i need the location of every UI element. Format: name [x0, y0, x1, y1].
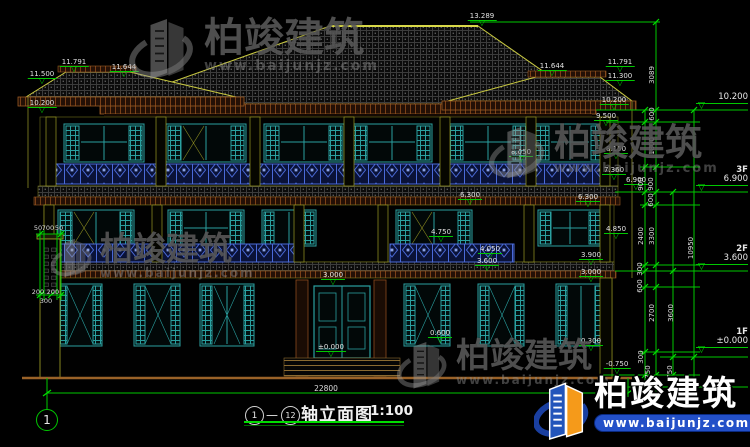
entrance-door	[284, 280, 400, 376]
dimension-value: 200	[32, 288, 44, 296]
dimension-value: 3600	[667, 304, 675, 322]
dimension-value: 600	[648, 107, 656, 120]
elevation-marker: 4.850	[604, 225, 628, 239]
elevation-marker: 10.200	[600, 96, 629, 110]
elevation-marker: 11.300	[606, 72, 635, 86]
brand-url-banner: www.baijunjz.com	[594, 414, 750, 432]
axis-bubble-1: 1	[36, 409, 58, 431]
dimension-value: 900	[647, 177, 655, 190]
elevation-marker: 3.900	[579, 251, 603, 265]
elevation-marker: 3.000	[579, 268, 603, 282]
elevation-marker: 4.750	[429, 228, 453, 242]
brand-logo: 柏竣建筑 www.baijunjz.com	[534, 377, 750, 443]
title-dash: —	[266, 408, 278, 422]
elevation-marker: 13.289	[468, 12, 497, 26]
elevation-marker: 11.500	[28, 70, 57, 84]
cad-elevation-screenshot: 13.289 11.791 11.644 11.500 10.200 11.64…	[0, 0, 750, 447]
elevation-marker: 6.300	[458, 191, 482, 205]
elevation-marker: 3.000	[321, 271, 345, 285]
elevation-marker: -0.750	[604, 360, 631, 374]
dimension-value: 900	[637, 177, 645, 190]
level-marker-3f: 3F6.900	[696, 166, 748, 186]
dimension-value: 300	[637, 350, 645, 363]
title-underline	[244, 421, 404, 423]
elevation-marker: 11.644	[538, 62, 567, 76]
elevation-marker: 7.360	[602, 166, 626, 180]
brand-name: 柏竣建筑	[594, 377, 750, 411]
dimension-value: 2700	[648, 304, 656, 322]
brand-logo-icon	[534, 377, 592, 443]
elevation-marker: 3.600	[475, 257, 499, 271]
dimension-value: 1800	[648, 137, 656, 155]
dimension-value: 300	[636, 262, 644, 275]
total-width-dimension: 22800	[314, 384, 338, 393]
railing-2f-left	[48, 244, 300, 262]
dimension-value: 2400	[637, 227, 645, 245]
dimension-value: 3089	[648, 66, 656, 84]
title-underline-2	[244, 425, 404, 426]
elevation-marker: ±0.000	[316, 343, 346, 357]
elevation-marker: 9.500	[594, 112, 618, 126]
dimension-value: 200	[47, 288, 59, 296]
dimension-value: 700	[42, 224, 54, 232]
elevation-marker: 11.791	[60, 58, 89, 72]
elevation-marker: 8.050	[509, 148, 533, 162]
elevation-marker: 0.600	[428, 329, 452, 343]
dimension-value: 50	[55, 224, 63, 232]
level-marker-parapet: 10.200	[696, 93, 748, 104]
drawing-scale: 1:100	[370, 403, 413, 419]
railing-3f	[50, 164, 608, 184]
elevation-marker: 11.644	[110, 63, 139, 77]
elevation-marker: 11.791	[606, 58, 635, 72]
level-marker-2f: 2F3.600	[696, 245, 748, 265]
dimension-value: 3300	[648, 227, 656, 245]
elevation-marker: 8.150	[604, 145, 628, 159]
elevation-marker: 6.300	[576, 193, 600, 207]
axis-number: 1	[43, 413, 51, 427]
dimension-value: 300	[40, 297, 52, 305]
dimension-value: 600	[647, 193, 655, 206]
elevation-marker: 10.200	[28, 99, 57, 113]
dimension-value: 600	[636, 279, 644, 292]
dimension-value: 10950	[687, 237, 695, 259]
level-marker-1f: 1F±0.000	[696, 328, 748, 348]
elevation-marker: 0.300	[579, 337, 603, 351]
